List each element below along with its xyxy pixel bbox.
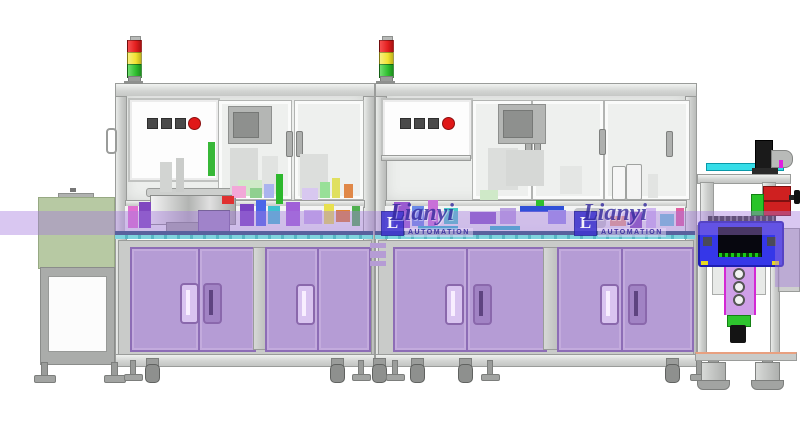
- leveling-foot-disc: [386, 374, 405, 381]
- watermark-subtitle: AUTOMATION: [598, 228, 666, 237]
- station-magenta-tick: [779, 160, 783, 168]
- inspection-column-hole-3: [733, 294, 745, 306]
- watermark-1: L Lianyi AUTOMATION: [381, 206, 491, 236]
- station-foot-disc: [34, 375, 56, 383]
- leveling-foot-disc: [481, 374, 500, 381]
- watermark-subtitle: AUTOMATION: [405, 228, 473, 237]
- caster-wheel: [665, 364, 680, 383]
- bigfoot-cylinder: [755, 362, 780, 382]
- leveling-foot-disc: [124, 374, 143, 381]
- camera-cylinder: [730, 325, 746, 343]
- caster-wheel: [410, 364, 425, 383]
- station-red-bearing-top: [763, 186, 791, 201]
- caster-wheel: [372, 364, 387, 383]
- bigfoot-base: [751, 380, 784, 390]
- leveling-foot-disc: [352, 374, 371, 381]
- watermark-brand: Lianyi: [390, 200, 454, 227]
- inspection-column-hole-2: [733, 281, 745, 293]
- caster-wheel: [330, 364, 345, 383]
- station-base-rail: [695, 352, 797, 361]
- caster-wheel: [145, 364, 160, 383]
- station-knob: [794, 190, 800, 204]
- caster-wheel: [458, 364, 473, 383]
- station-oven-green-strip: [719, 253, 761, 257]
- inspection-column-hole-1: [733, 268, 745, 280]
- watermark-band-right-patch: [775, 235, 800, 287]
- watermark-brand: Lianyi: [583, 200, 647, 227]
- station-oven-latch-left: [703, 237, 712, 246]
- bigfoot-base: [697, 380, 730, 390]
- station-motor-base: [752, 168, 778, 174]
- station-foot-disc: [104, 375, 126, 383]
- watermark-2: L Lianyi AUTOMATION: [574, 206, 684, 236]
- station-oven-foot-left: [701, 261, 708, 265]
- machine-line-rendering: L Lianyi AUTOMATION L Lianyi AUTOMATION: [0, 0, 800, 438]
- bigfoot-cylinder: [701, 362, 726, 382]
